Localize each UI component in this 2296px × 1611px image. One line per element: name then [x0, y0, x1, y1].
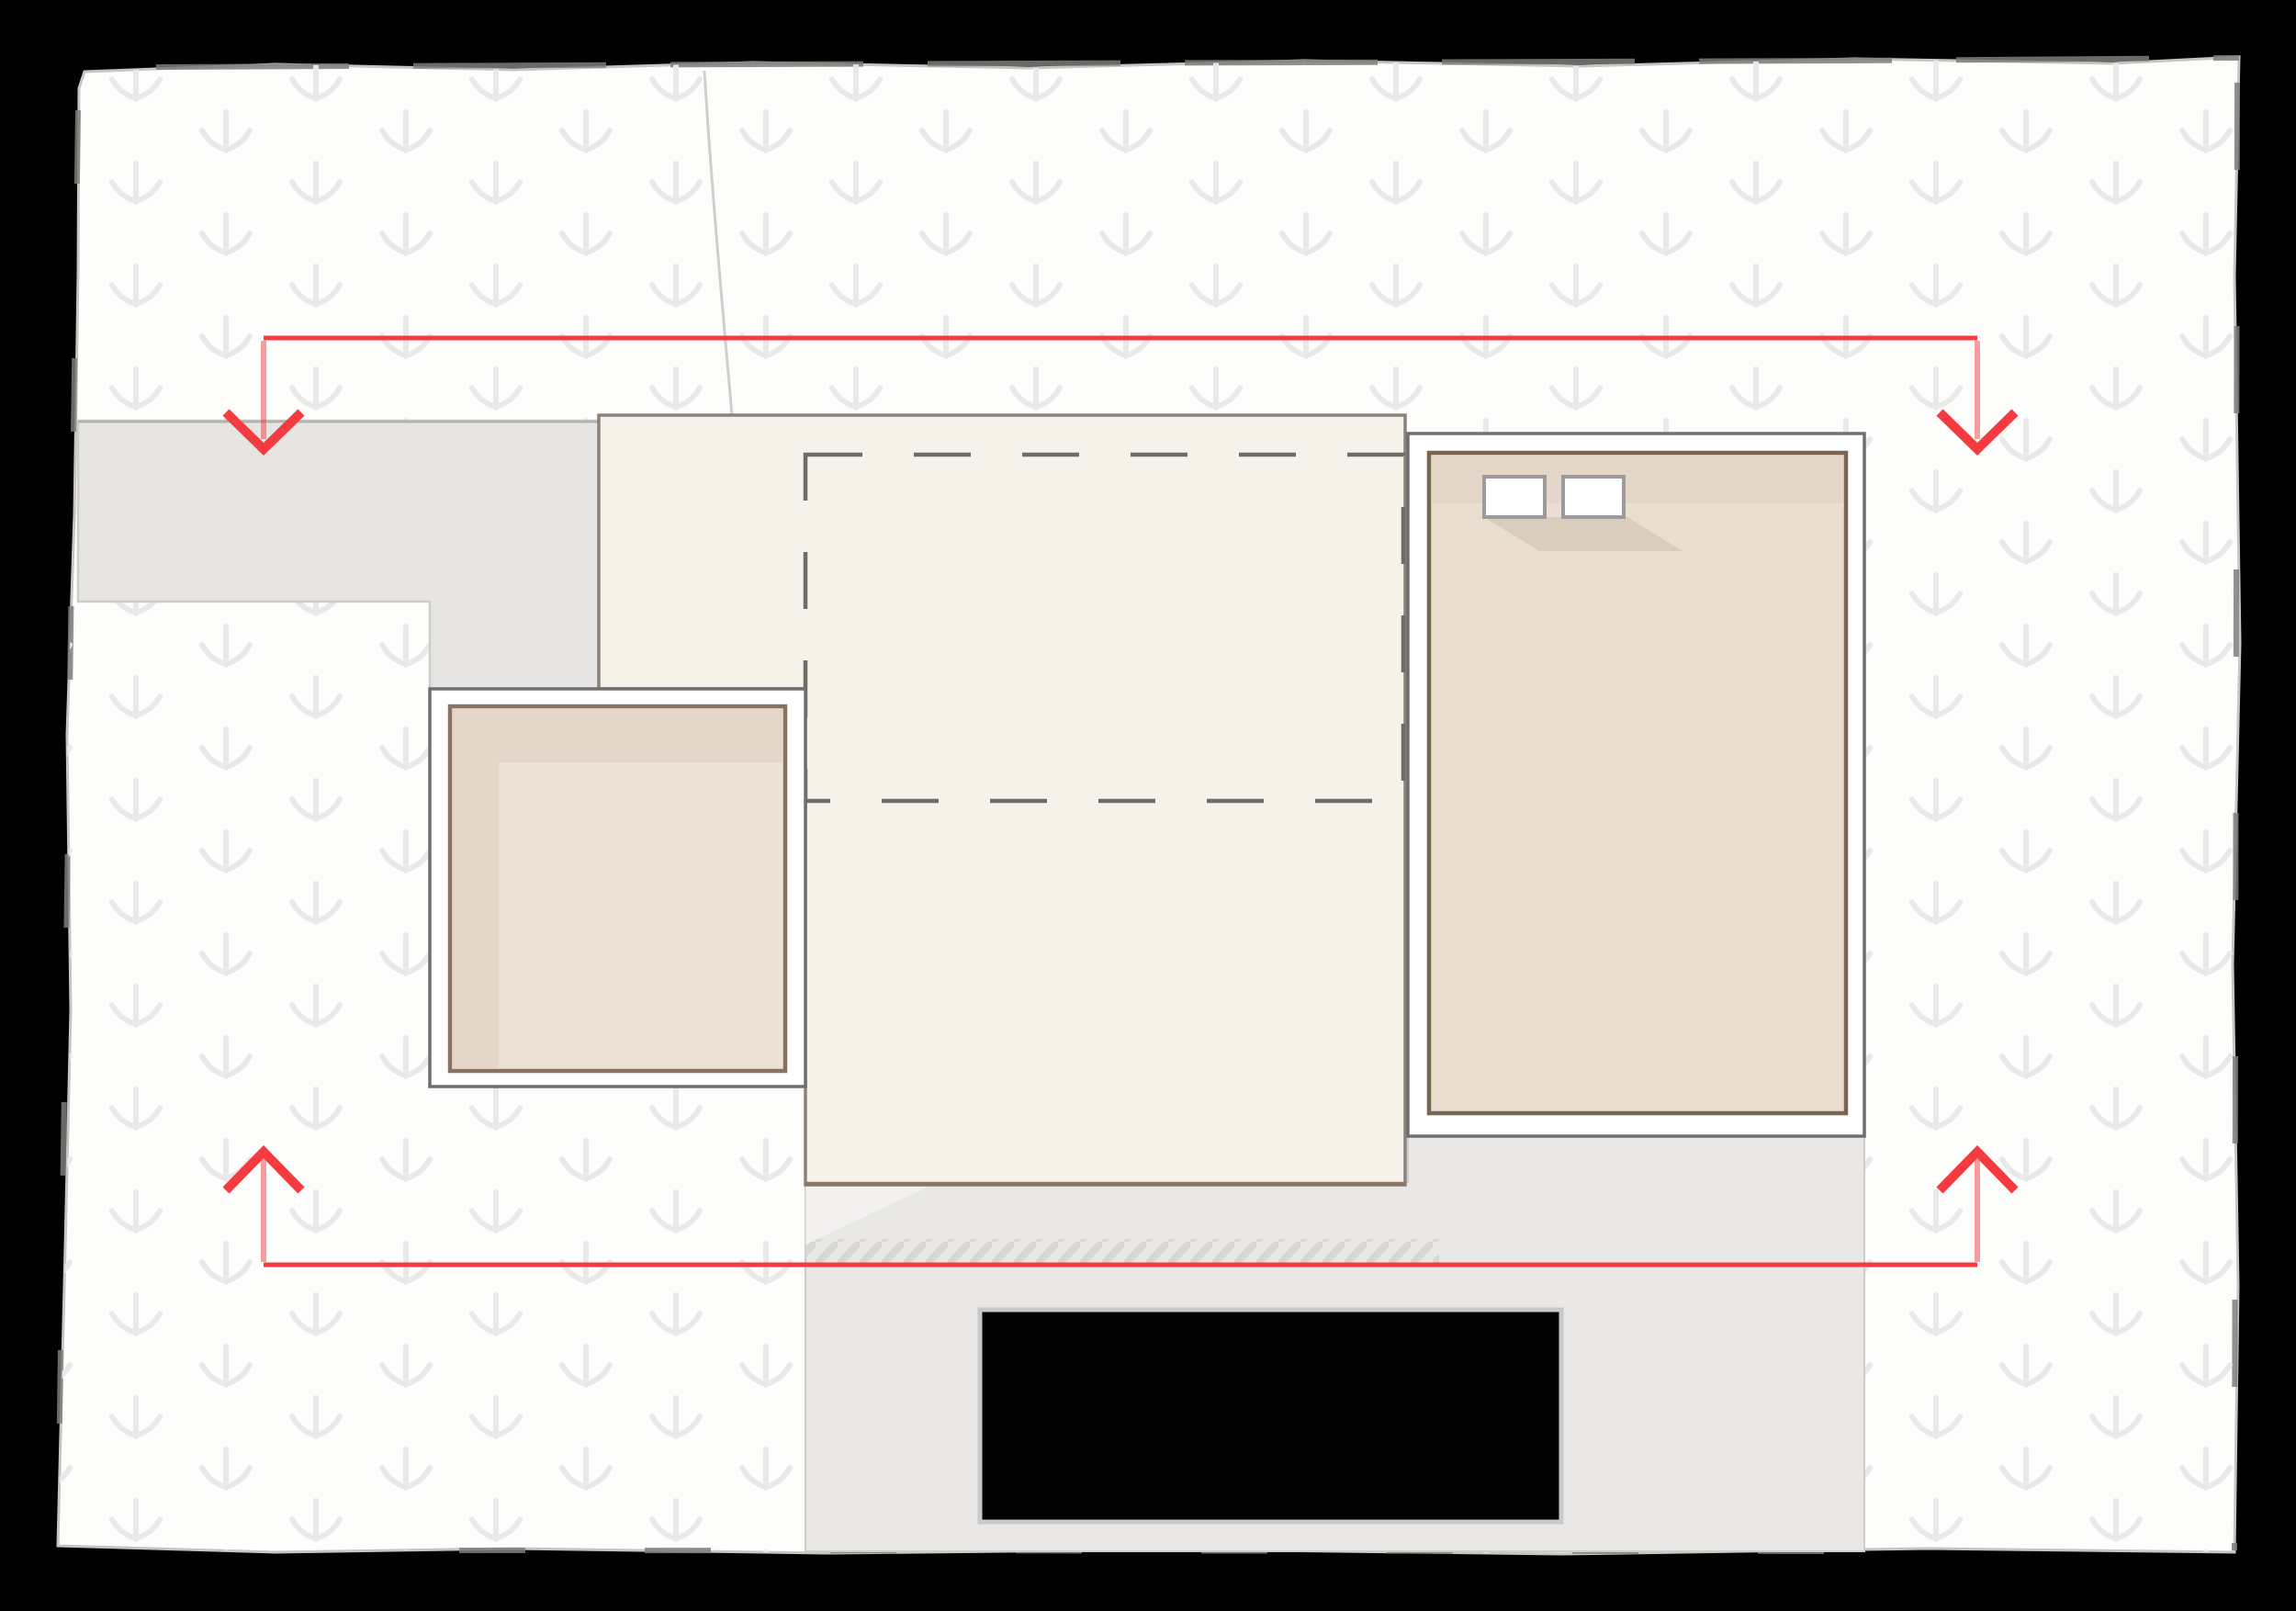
site-plan-drawing: [0, 0, 2296, 1611]
left-accessory-building: [430, 689, 805, 1087]
right-building-roof: [1429, 453, 1846, 1113]
left-building-roof-shade: [453, 709, 782, 762]
site-plan-canvas: [0, 0, 2296, 1611]
skylight-icon: [1484, 477, 1545, 517]
left-building-roof-shade-side: [453, 709, 499, 1068]
vehicle-rectangle: [980, 1310, 1561, 1522]
driveway-crossing-hatch: [805, 1239, 1439, 1263]
skylight-icon: [1563, 477, 1624, 517]
right-accessory-building: [1408, 434, 1864, 1136]
